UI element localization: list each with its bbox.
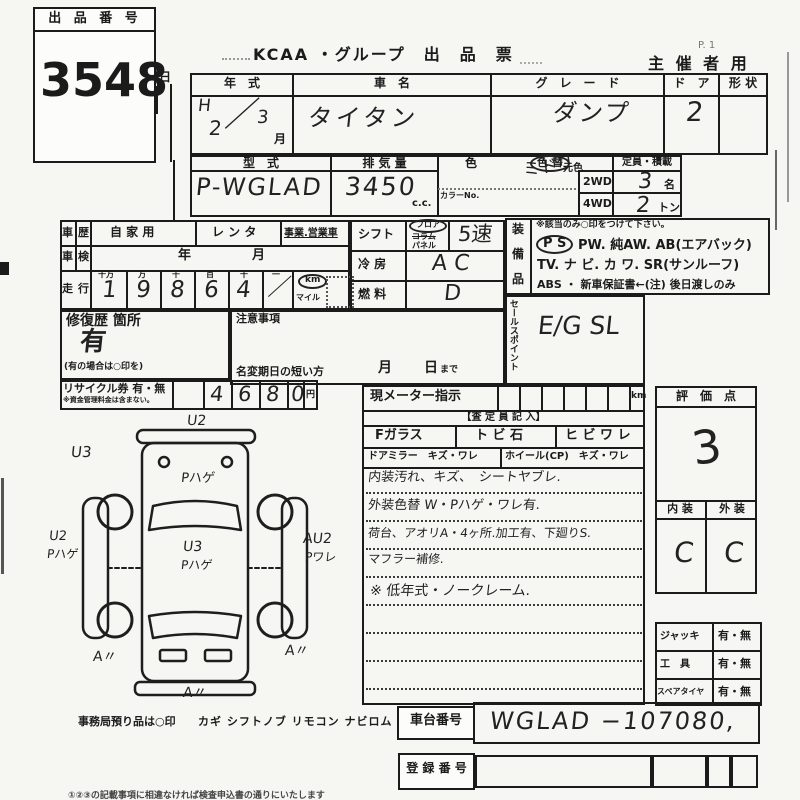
- bottom-clipped-note: ①②③の記載事項に相違なければ検査申込書の通りにいたします: [68, 792, 325, 800]
- note-rule: [366, 548, 642, 550]
- model-header: 型 式: [192, 157, 330, 170]
- fuel-label: 燃 料: [358, 288, 386, 301]
- history-label-2: 歴: [78, 227, 89, 239]
- damage-diagram: U2 U3 Pハゲ U2 Pハゲ U3 Pハゲ AU2 Pワレ A〃 A〃 A〃: [45, 410, 345, 710]
- ac-value: A C: [431, 252, 471, 276]
- recycle-divider: [172, 380, 174, 410]
- meter-box-divider: [607, 385, 609, 410]
- hist-rule: [60, 245, 350, 247]
- damage-code: Pハゲ: [180, 559, 213, 572]
- front-glass-label: Fガラス: [375, 429, 423, 443]
- odo-unit-mile: マイル: [296, 294, 320, 303]
- displacement-header: 排 気 量: [332, 157, 437, 170]
- odometer-label-1: 走: [62, 283, 73, 295]
- damage-code: U2: [186, 414, 207, 429]
- scan-artifact-line: [156, 86, 158, 114]
- door-mirror-label: ドアミラー キズ・ワレ: [368, 451, 478, 462]
- odo-divider: [194, 270, 196, 310]
- odo-unit-km-circled: km: [298, 274, 327, 289]
- exterior-header: 外 装: [707, 503, 757, 515]
- wheel-rear-left: [98, 603, 132, 637]
- month-unit: 月: [274, 133, 286, 146]
- damage-code: AU2: [302, 532, 332, 547]
- inspector-note-3: 荷台、アオリA・4ヶ所.加工有、下廻りS.: [367, 527, 591, 540]
- shift-label: シフト: [358, 228, 394, 241]
- spare-tire-label: スペアタイヤ: [657, 688, 704, 697]
- inspector-entry-label: 【査 定 員 記 入】: [362, 412, 645, 423]
- rear-window-shape: [149, 612, 241, 638]
- tools-label: 工 具: [660, 659, 690, 670]
- car-name-value: タイタン: [307, 105, 421, 131]
- damage-code: A〃: [284, 644, 309, 659]
- meter-rule: [362, 467, 645, 469]
- recycle-digit: 0: [290, 383, 306, 406]
- crack-label: ヒ ビ ワ レ: [565, 429, 631, 443]
- capacity-header: 定員・積載: [614, 157, 680, 168]
- sheet-title: KCAA ・グループ 出 品 票: [253, 46, 514, 64]
- drive-divider: [405, 220, 407, 310]
- ac-label: 冷 房: [358, 258, 386, 271]
- shaken-label-2: 検: [78, 251, 89, 263]
- office-keep-note: 事務局預り品は○印: [78, 716, 176, 728]
- year-num-value: 2: [208, 117, 223, 139]
- namechange-month-label: 月: [378, 361, 392, 376]
- recycle-divider: [287, 380, 289, 410]
- registration-box-4: [731, 755, 758, 788]
- color-header: 色: [465, 157, 477, 170]
- interior-grade: C: [672, 538, 695, 569]
- wheel-rear-right: [258, 603, 292, 637]
- door-header: ド ア: [665, 77, 718, 90]
- note-rule: [366, 660, 642, 662]
- scan-artifact-edge-line: [775, 150, 777, 230]
- side-panel-right: [282, 498, 307, 638]
- fuel-value: D: [443, 282, 462, 306]
- jack-label: ジャッキ: [660, 631, 700, 642]
- capacity-4wd-value: 2: [635, 194, 652, 218]
- door-value: 2: [684, 98, 704, 128]
- spare-tire-value: 有・無: [718, 686, 751, 698]
- exhibit-number-value: 3548: [40, 55, 150, 106]
- exterior-grade: C: [722, 538, 745, 569]
- shaken-year-label: 年: [178, 249, 191, 263]
- meter-divider: [455, 425, 457, 447]
- sales-point-side-label: セールスポイント: [507, 299, 517, 381]
- grade-value: ダンプ: [552, 100, 632, 126]
- t2-rule: [578, 192, 682, 194]
- sales-point-block: [505, 295, 645, 385]
- note-rule: [366, 632, 642, 634]
- hist-divider: [280, 220, 282, 245]
- equip-side-label-2: 備: [512, 248, 524, 261]
- meter-box-divider: [541, 385, 543, 410]
- recycle-note: ※資金管理料金は含まない。: [63, 397, 154, 405]
- side-panel-left: [83, 498, 108, 638]
- color-no-dotted-rule: [438, 188, 576, 190]
- recycle-divider: [203, 380, 205, 410]
- sales-point-value: E/G SL: [537, 312, 621, 340]
- auction-sheet-scan: 出 品 番 号 3548 日 KCAA ・グループ 出 品 票 P. 1 主 催…: [0, 0, 800, 800]
- taillight-left: [160, 650, 186, 661]
- scan-artifact-dots: [520, 62, 542, 64]
- registration-box-2: [652, 755, 707, 788]
- equip-line3: ABS ・ 新車保証書←(注) 後日渡しのみ: [537, 279, 736, 291]
- scan-artifact-edge-mark: [0, 262, 9, 275]
- shape-header: 形 状: [720, 77, 766, 90]
- scan-artifact-edge-line: [787, 52, 789, 202]
- organizer-label: 主 催 者 用: [648, 55, 750, 73]
- chassis-value: WGLAD −107080,: [489, 708, 738, 734]
- odo-digit: 6: [203, 278, 220, 303]
- odo-digit: 4: [235, 278, 252, 303]
- meter-box-divider: [497, 385, 499, 410]
- chassis-label: 車台番号: [397, 714, 475, 728]
- meter-unit: km: [631, 392, 646, 402]
- odo-digit: 1: [101, 278, 118, 303]
- acc-rule: [655, 650, 762, 652]
- recycle-digit: 6: [237, 383, 253, 406]
- scan-artifact-dots: [222, 58, 250, 60]
- cab-detail-right: [222, 457, 232, 467]
- meter-label: 現メーター指示: [370, 390, 461, 404]
- meter-rule: [362, 425, 645, 427]
- inspector-note-4: マフラー補修.: [367, 553, 444, 566]
- wheel-label: ホイール(CP) キズ・ワレ: [505, 451, 629, 462]
- inspector-note-2: 外装色替 W・Pハゲ・ワレ有.: [367, 499, 540, 513]
- odo-digit: ／: [267, 276, 293, 301]
- cab-detail-left: [159, 457, 169, 467]
- business-use-label: 事業.営業車: [284, 228, 338, 239]
- office-keep-items: カギ シフトノブ リモコン ナビロム: [198, 716, 393, 728]
- damage-code: U3: [182, 540, 203, 555]
- capacity-2wd-value: 3: [637, 170, 654, 194]
- damage-code: U3: [70, 444, 92, 461]
- note-rule: [366, 688, 642, 690]
- recycle-digit: 8: [265, 383, 281, 406]
- equip-side-label-1: 装: [512, 223, 524, 236]
- meter-divider: [555, 425, 557, 447]
- scan-artifact-edge-line: [1, 478, 4, 574]
- scan-artifact-line: [170, 84, 172, 162]
- meter-divider: [500, 447, 502, 467]
- note-rule: [366, 520, 642, 522]
- recycle-digit: 4: [209, 383, 225, 406]
- damage-code: A〃: [182, 686, 207, 701]
- t1-header-rule: [190, 95, 768, 97]
- meter-box-divider: [563, 385, 565, 410]
- exhibit-number-label: 出 品 番 号: [40, 12, 150, 26]
- note-rule: [366, 604, 642, 606]
- year-header: 年 式: [192, 77, 292, 90]
- grade-header: グ レ ー ド: [492, 77, 663, 90]
- history-label-1: 車: [62, 227, 73, 239]
- repair-value: 有: [78, 328, 107, 357]
- registration-box-1: [475, 755, 652, 788]
- equip-note: ※該当のみ○印をつけて下さい。: [536, 221, 670, 231]
- odo-divider: [262, 270, 264, 310]
- capacity-2wd-unit: 名: [664, 179, 675, 191]
- displacement-value: 3450: [344, 173, 419, 201]
- repair-note: (有の場合は○印を): [64, 363, 143, 373]
- acc-rule: [655, 678, 762, 680]
- recycle-yen-unit: 円: [306, 391, 315, 401]
- equip-side-label-3: 品: [512, 273, 524, 286]
- windshield-shape: [149, 501, 241, 530]
- meter-box-divider: [585, 385, 587, 410]
- jack-value: 有・無: [718, 630, 751, 642]
- equip-line2: TV. ナ ビ. カ ワ. SR(サンルーフ): [537, 259, 739, 273]
- tools-value: 有・無: [718, 658, 751, 670]
- scan-artifact-line: [173, 160, 175, 222]
- hist-divider: [195, 220, 197, 245]
- shift-option-panel: パネル: [412, 242, 436, 251]
- shaken-month-label: 月: [252, 249, 265, 263]
- eval-rule: [655, 406, 757, 408]
- hist-divider: [90, 220, 92, 310]
- capacity-4wd-unit: トン: [658, 202, 680, 214]
- wd2-label: 2WD: [583, 176, 612, 188]
- shaken-label-1: 車: [62, 251, 73, 263]
- recycle-divider: [259, 380, 261, 410]
- namechange-day-label: 日: [424, 361, 438, 376]
- name-change-label: 名変期日の短い方: [236, 366, 324, 378]
- rental-label: レ ン タ: [212, 226, 256, 239]
- damage-code: Pハゲ: [46, 548, 79, 561]
- meter-rule: [362, 447, 645, 449]
- scan-artifact-glyph: 日: [159, 71, 171, 84]
- odo-divider: [160, 270, 162, 310]
- name-header: 車 名: [294, 77, 490, 90]
- inspector-note-5: ※ 低年式・ノークレーム.: [369, 584, 531, 599]
- year-slash: ／: [223, 97, 261, 134]
- month-value: 3: [256, 108, 270, 128]
- meter-box-divider: [519, 385, 521, 410]
- taillight-right: [205, 650, 231, 661]
- caution-label: 注意事項: [236, 313, 280, 325]
- year-era-value: H: [197, 97, 212, 116]
- private-use-label: 自 家 用: [110, 226, 154, 239]
- odo-divider: [228, 270, 230, 310]
- stone-chip-label: ト ビ 石: [475, 429, 523, 443]
- damage-code: A〃: [92, 650, 117, 665]
- equip-line1: PW. 純AW. AB(エアバック): [578, 239, 752, 253]
- t2-divider: [437, 155, 439, 217]
- recycle-divider: [231, 380, 233, 410]
- inspector-note-1: 内装汚れ、キズ、 シートヤブレ.: [367, 471, 561, 485]
- equip-divider: [530, 218, 532, 295]
- acc-divider: [712, 622, 714, 706]
- color-no-label: カラーNo.: [440, 192, 479, 201]
- odo-digit: 8: [169, 278, 186, 303]
- damage-code: U2: [48, 530, 67, 544]
- shift-value: 5速: [457, 223, 494, 246]
- cc-unit: c.c.: [412, 198, 431, 209]
- registration-box-3: [707, 755, 731, 788]
- note-rule: [366, 576, 642, 578]
- interior-header: 内 装: [655, 503, 705, 515]
- drive-divider: [448, 220, 450, 250]
- registration-label: 登 録 番 号: [398, 762, 475, 775]
- t2-rule: [578, 170, 682, 172]
- damage-code: Pワレ: [304, 551, 337, 564]
- odo-divider: [126, 270, 128, 310]
- odometer-label-2: 行: [78, 283, 89, 295]
- page-number: P. 1: [698, 40, 715, 51]
- note-rule: [366, 492, 642, 494]
- model-value: P-WGLAD: [195, 174, 325, 200]
- drive-rule: [350, 280, 505, 282]
- wd4-label: 4WD: [583, 198, 612, 210]
- exhibit-header-rule: [35, 30, 154, 32]
- front-bumper-shape: [137, 430, 255, 443]
- shift-option-floor-circled: フロア: [409, 219, 447, 233]
- recycle-label: リサイクル券 有・無: [63, 383, 165, 395]
- namechange-made-label: まで: [440, 366, 458, 376]
- damage-code: Pハゲ: [180, 472, 215, 486]
- odo-digit: 9: [135, 278, 152, 303]
- evaluation-label: 評 価 点: [655, 390, 757, 403]
